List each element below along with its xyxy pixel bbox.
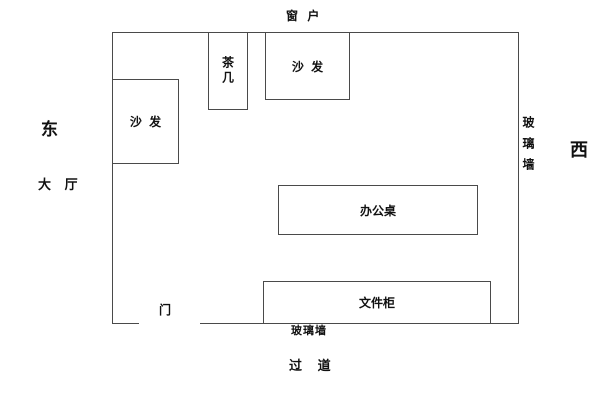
sofa-top-box: 沙 发 — [265, 32, 350, 100]
office-desk-label: 办公桌 — [360, 202, 396, 219]
sofa-left-label: 沙 发 — [130, 113, 161, 130]
door-label: 门 — [159, 304, 171, 316]
compass-west-label: 西 — [570, 141, 588, 159]
sofa-left-box: 沙 发 — [112, 79, 179, 164]
glass-wall-bottom-label: 玻璃墙 — [291, 326, 327, 337]
room-wall-bottom-left-segment — [112, 323, 139, 324]
tea-table-label: 茶几 — [220, 56, 237, 86]
office-desk-box: 办公桌 — [278, 185, 478, 235]
floor-plan-diagram: 沙 发 茶几 沙 发 办公桌 文件柜 窗 户 东 西 大 厅 玻璃墙 门 玻璃墙… — [0, 0, 600, 400]
file-cabinet-box: 文件柜 — [263, 281, 491, 324]
glass-wall-right-label: 玻璃墙 — [522, 116, 534, 179]
window-label: 窗 户 — [286, 10, 319, 22]
file-cabinet-label: 文件柜 — [359, 294, 395, 311]
compass-east-label: 东 — [41, 121, 58, 138]
tea-table-box: 茶几 — [208, 32, 248, 110]
lobby-label: 大 厅 — [38, 178, 78, 191]
room-wall-left — [112, 32, 113, 324]
aisle-label: 过 道 — [289, 359, 331, 372]
room-wall-right-glass — [518, 32, 519, 324]
sofa-top-label: 沙 发 — [292, 58, 323, 75]
